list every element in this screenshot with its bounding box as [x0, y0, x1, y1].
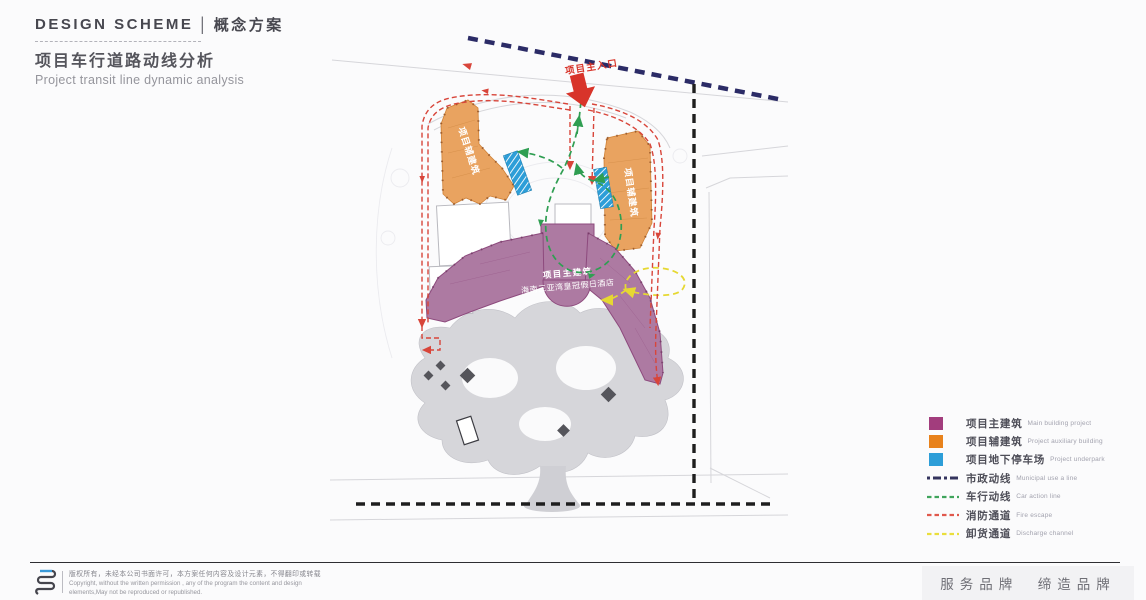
- legend-label: 市政动线: [966, 471, 1011, 486]
- site-plan-map: 项目辅建筑 项目辅建筑 项目主建筑 海南三亚湾皇冠假日酒店: [330, 28, 790, 533]
- brand-slogan-panel: 服务品牌 缔造品牌: [922, 566, 1134, 600]
- dashed-rule: [35, 41, 201, 42]
- legend-sublabel: Municipal use a line: [1016, 475, 1077, 482]
- legend-item-discharge-channel: 卸货通道 Discharge channel: [926, 524, 1105, 542]
- page-subtitle: Project transit line dynamic analysis: [35, 73, 284, 87]
- kicker: DESIGN SCHEME | 概念方案: [35, 14, 284, 35]
- legend-item-municipal-line: 市政动线 Municipal use a line: [926, 469, 1105, 487]
- legend: 项目主建筑 Main building project 项目辅建筑 Projec…: [926, 414, 1105, 543]
- legend-sublabel: Project auxiliary building: [1028, 438, 1103, 445]
- page-title: 项目车行道路动线分析: [35, 47, 284, 71]
- kicker-cn: 概念方案: [214, 14, 284, 35]
- legend-sublabel: Discharge channel: [1016, 530, 1073, 537]
- company-logo-icon: [32, 568, 58, 596]
- legend-label: 车行动线: [966, 489, 1011, 504]
- legend-label: 项目主建筑: [966, 416, 1023, 431]
- legend-label: 卸货通道: [966, 526, 1011, 541]
- aux-building-left: 项目辅建筑: [441, 100, 514, 204]
- parking-swatch: [929, 453, 943, 466]
- copyright-cn: 版权所有，未经本公司书面许可，本方案任何内容及设计元素，不得翻印或转载: [69, 570, 321, 580]
- copyright: 版权所有，未经本公司书面许可，本方案任何内容及设计元素，不得翻印或转载 Copy…: [69, 570, 321, 598]
- aux-building-right: 项目辅建筑: [604, 131, 652, 251]
- aux-building-swatch: [929, 435, 943, 448]
- kicker-en: DESIGN SCHEME: [35, 16, 193, 33]
- brand-slogan: 服务品牌 缔造品牌: [940, 573, 1116, 593]
- legend-item-main-building: 项目主建筑 Main building project: [926, 414, 1105, 432]
- legend-item-fire-escape: 消防通道 Fire escape: [926, 506, 1105, 524]
- legend-sublabel: Car action line: [1016, 493, 1061, 500]
- legend-sublabel: Main building project: [1028, 420, 1092, 427]
- legend-sublabel: Fire escape: [1016, 512, 1052, 519]
- legend-item-underground-parking: 项目地下停车场 Project underpark: [926, 451, 1105, 469]
- copyright-en-1: Copyright, without the written permissio…: [69, 580, 321, 589]
- copyright-en-2: elements,May not be reproduced or republ…: [69, 589, 321, 598]
- legend-label: 项目辅建筑: [966, 434, 1023, 449]
- kicker-separator: |: [200, 14, 206, 34]
- footer-separator: [62, 571, 63, 593]
- legend-sublabel: Project underpark: [1050, 456, 1105, 463]
- legend-item-car-line: 车行动线 Car action line: [926, 488, 1105, 506]
- main-building-swatch: [929, 417, 943, 430]
- legend-label: 项目地下停车场: [966, 452, 1045, 467]
- footer-divider: [30, 562, 1120, 563]
- legend-label: 消防通道: [966, 508, 1011, 523]
- legend-item-aux-building: 项目辅建筑 Project auxiliary building: [926, 432, 1105, 450]
- header: DESIGN SCHEME | 概念方案 项目车行道路动线分析 Project …: [35, 14, 284, 87]
